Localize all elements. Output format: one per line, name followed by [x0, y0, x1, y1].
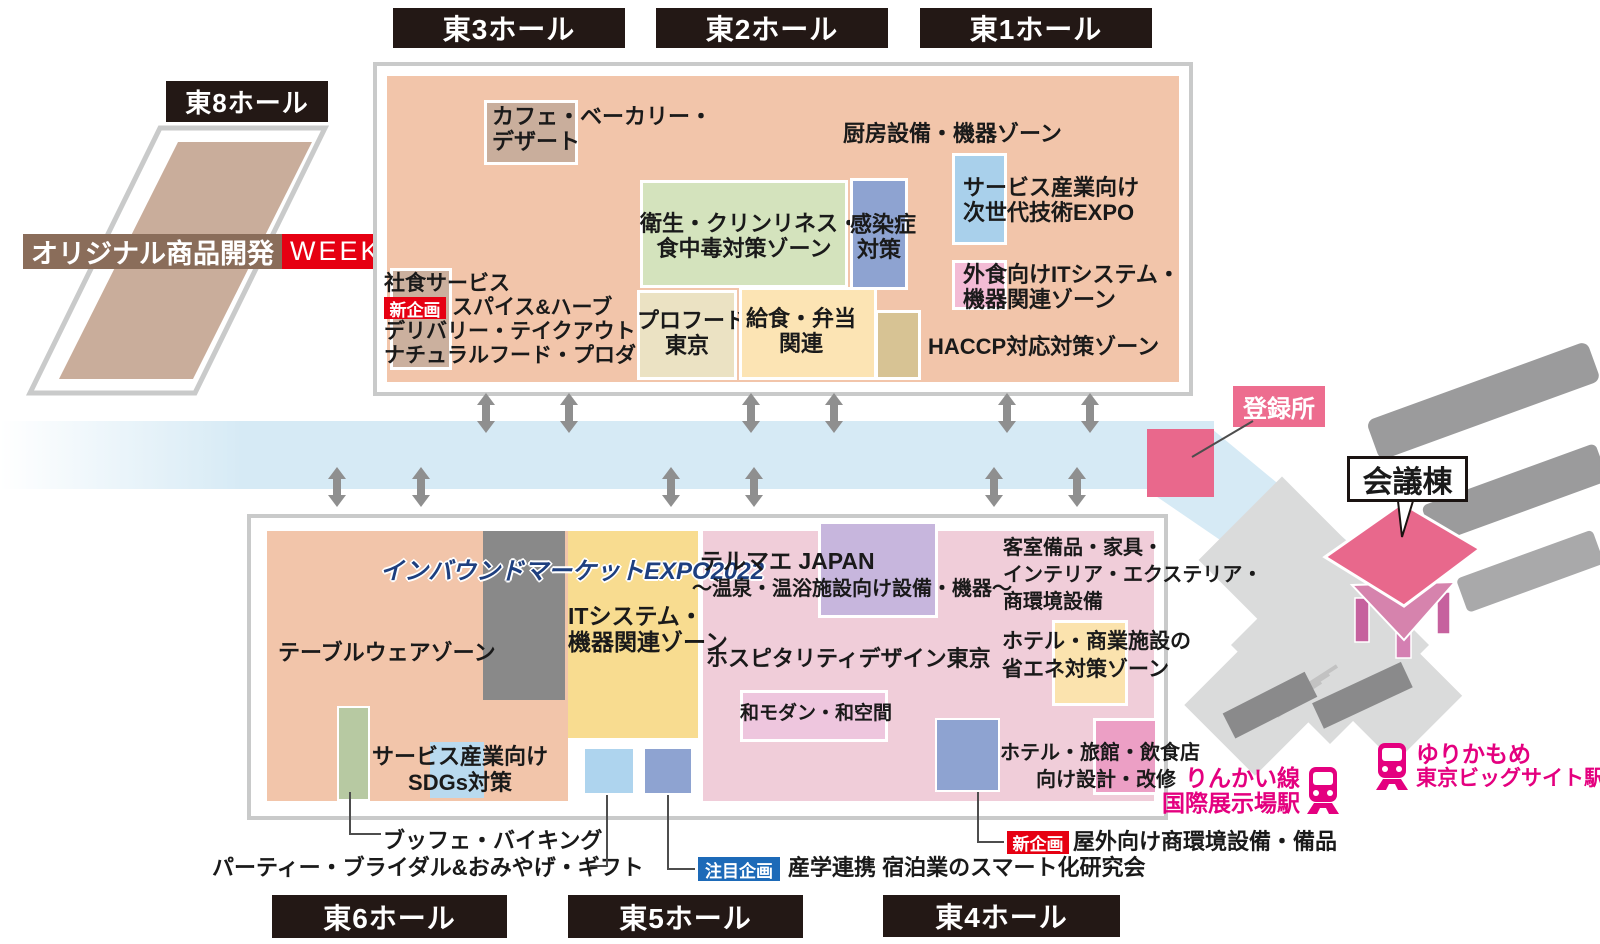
conference-label: 会議棟 [1347, 456, 1468, 502]
double-arrow-icon [409, 466, 433, 508]
zone-sangaku-block [643, 747, 693, 795]
zone-hospitality-label: ホスピタリティデザイン東京 [706, 646, 991, 671]
double-arrow-icon [557, 392, 581, 434]
hall-label-east1: 東1ホール [920, 8, 1152, 48]
hall-label-east5: 東5ホール [568, 895, 803, 938]
double-arrow-icon [1078, 392, 1102, 434]
rinkai-station-label: りんかい線 国際展示場駅 [1152, 766, 1300, 817]
annotation-outdoor: 屋外向け商環境設備・備品 [1073, 829, 1337, 854]
hall-label-east6: 東6ホール [272, 895, 507, 938]
zone-haccp-box [875, 310, 921, 380]
double-arrow-icon [325, 466, 349, 508]
annotation-party: パーティー・ブライダル&おみやげ・ギフト [212, 855, 644, 880]
annotation-sangaku: 産学連携 宿泊業のスマート化研究会 [788, 855, 1145, 880]
zone-service-expo-label: サービス産業向け次世代技術EXPO [963, 175, 1139, 226]
zone-profood-label: プロフード東京 [637, 308, 737, 359]
lower-gray-block [483, 531, 565, 700]
registration-label: 登録所 [1233, 386, 1325, 427]
train-icon [1374, 741, 1410, 791]
zone-kitchen-label: 厨房設備・機器ゾーン [843, 121, 1062, 146]
zone-shashoku-label: 社食サービス [384, 272, 510, 296]
annotation-buffet: ブッフェ・バイキング [383, 828, 602, 853]
zone-tableware-label: テーブルウェアゾーン [278, 640, 496, 665]
double-arrow-icon [1065, 466, 1089, 508]
double-arrow-icon [995, 392, 1019, 434]
week-banner-main: オリジナル商品開発 [23, 234, 282, 269]
zone-energy-label: ホテル・商業施設の 省エネ対策ゾーン [1002, 628, 1191, 685]
train-icon [1305, 765, 1341, 815]
hall-label-east8: 東8ホール [166, 81, 328, 122]
zone-hygiene-label: 衛生・クリンリネス・食中毒対策ゾーン [640, 211, 848, 262]
zone-natural-food-label: ナチュラルフード・プロダクツ [384, 344, 678, 368]
hall-label-east4: 東4ホール [883, 895, 1120, 937]
zone-party-block [583, 747, 635, 795]
zone-spice-label: スパイス&ハーブ [452, 296, 612, 320]
hall-label-east2: 東2ホール [656, 8, 888, 48]
double-arrow-icon [982, 466, 1006, 508]
week-banner: オリジナル商品開発 WEEK [23, 234, 390, 269]
zone-infection-label: 感染症対策 [850, 212, 908, 263]
zone-thermae-label: テルマエ JAPAN 〜温泉・温浴施設向け設備・機器〜 [700, 548, 1020, 601]
zone-guestroom-label: 客室備品・家具・ インテリア・エクステリア・ 商環境設備 [1003, 535, 1262, 616]
double-arrow-icon [474, 392, 498, 434]
venue-floor-map: 東3ホール 東2ホール 東1ホール 東8ホール オリジナル商品開発 WEEK カ… [0, 0, 1600, 944]
zone-haccp-label: HACCP対応対策ゾーン [928, 334, 1159, 359]
featured-badge: 注目企画 [698, 857, 780, 881]
yurikamome-station-label: ゆりかもめ 東京ビッグサイト駅 [1416, 742, 1600, 790]
registration-square [1147, 429, 1214, 497]
new-badge-outdoor: 新企画 [1007, 831, 1069, 854]
zone-wamodern-label: 和モダン・和空間 [740, 703, 888, 725]
double-arrow-icon [742, 466, 766, 508]
zone-cafe-label: カフェ・ベーカリー・デザート [492, 104, 712, 155]
hall-label-east3: 東3ホール [393, 8, 625, 48]
zone-it-label: ITシステム・機器関連ゾーン [568, 603, 698, 656]
zone-kyushoku-label: 給食・弁当関連 [739, 306, 863, 357]
zone-sdgs-label: サービス産業向けSDGs対策 [360, 744, 560, 797]
new-badge-spice: 新企画 [384, 297, 446, 319]
zone-restaurant-it-label: 外食向けITシステム・機器関連ゾーン [963, 262, 1180, 313]
double-arrow-icon [659, 466, 683, 508]
zone-delivery-label: デリバリー・テイクアウト [384, 320, 636, 344]
double-arrow-icon [822, 392, 846, 434]
double-arrow-icon [739, 392, 763, 434]
zone-outdoor-block [935, 718, 1000, 792]
